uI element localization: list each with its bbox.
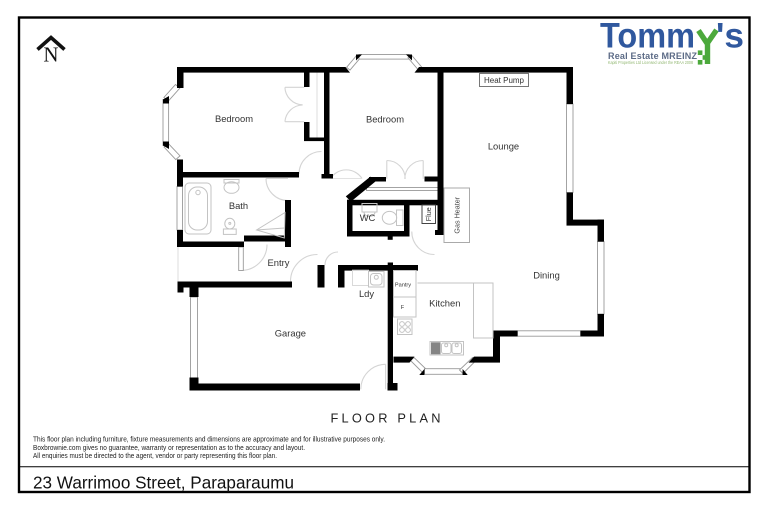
svg-text:Tomm: Tomm: [600, 17, 695, 56]
svg-text:This floor plan including furn: This floor plan including furniture, fix…: [33, 437, 385, 444]
svg-text:Garage: Garage: [275, 327, 306, 338]
svg-text:Ldy: Ldy: [359, 288, 374, 299]
svg-text:Entry: Entry: [268, 257, 290, 268]
svg-text:All enquiries must be directed: All enquiries must be directed to the ag…: [33, 453, 277, 460]
svg-text:N: N: [43, 43, 58, 67]
svg-text:Pantry: Pantry: [395, 283, 411, 289]
svg-text:Kapiti Properties Ltd Licensed: Kapiti Properties Ltd Licensed under the…: [608, 60, 693, 65]
svg-text:Lounge: Lounge: [488, 141, 519, 152]
svg-text:'s: 's: [716, 17, 744, 56]
svg-text:Kitchen: Kitchen: [429, 298, 460, 309]
svg-text:Bedroom: Bedroom: [366, 114, 404, 125]
svg-text:F: F: [401, 305, 405, 311]
svg-text:Heat Pump: Heat Pump: [484, 76, 525, 85]
svg-text:Boxbrownie.com gives no guaran: Boxbrownie.com gives no guarantee, warra…: [33, 445, 305, 452]
svg-text:FLOOR PLAN: FLOOR PLAN: [331, 410, 441, 425]
svg-text:Dining: Dining: [533, 270, 560, 281]
svg-text:Bedroom: Bedroom: [215, 113, 253, 124]
svg-text:Flue: Flue: [424, 207, 433, 221]
svg-text:Gas Heater: Gas Heater: [452, 196, 461, 233]
svg-text:Bath: Bath: [229, 200, 248, 211]
svg-text:WC: WC: [360, 212, 376, 223]
svg-text:23 Warrimoo Street, Paraparaum: 23 Warrimoo Street, Paraparaumu: [33, 472, 294, 492]
